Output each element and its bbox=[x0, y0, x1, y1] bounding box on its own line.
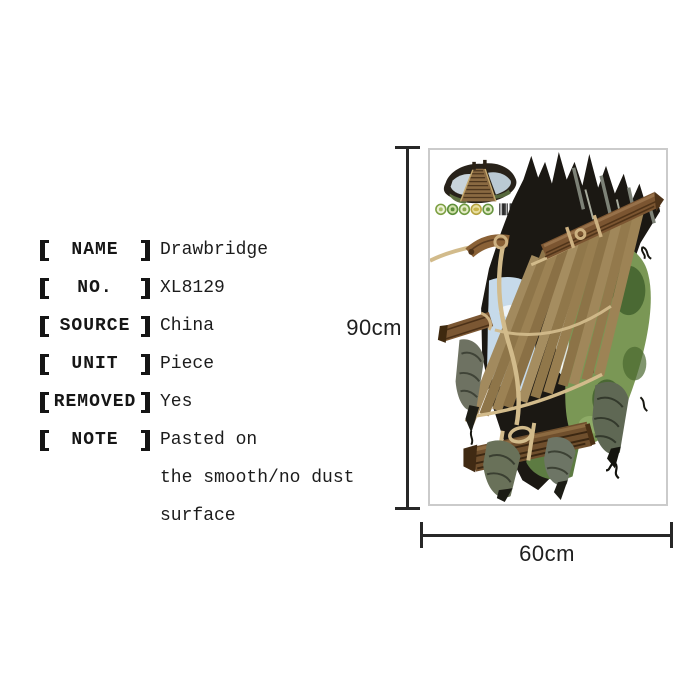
spec-value-note: Pasted on the smooth/no dust surface bbox=[160, 421, 354, 535]
certification-badges bbox=[436, 203, 517, 215]
width-dimension-cap-left bbox=[420, 522, 423, 548]
bracket-close-icon bbox=[141, 392, 150, 413]
branch-twig bbox=[640, 397, 647, 411]
spec-label: NO. bbox=[40, 269, 150, 307]
spec-row-name: NAME Drawbridge bbox=[40, 231, 400, 269]
spec-label: NOTE bbox=[40, 421, 150, 459]
note-line: the smooth/no dust bbox=[160, 459, 354, 497]
note-line: surface bbox=[160, 497, 354, 535]
spec-value: Yes bbox=[160, 383, 192, 421]
bracket-close-icon bbox=[141, 430, 150, 451]
spec-label: REMOVED bbox=[40, 383, 150, 421]
bracket-close-icon bbox=[141, 316, 150, 337]
bracket-open-icon bbox=[40, 430, 49, 451]
bracket-open-icon bbox=[40, 354, 49, 375]
product-info-sheet: NAME Drawbridge NO. XL8129 SOURCE China bbox=[0, 0, 700, 700]
spec-row-removed: REMOVED Yes bbox=[40, 383, 400, 421]
sticker-thumbnail bbox=[444, 160, 517, 204]
spec-row-note: NOTE Pasted on the smooth/no dust surfac… bbox=[40, 421, 400, 535]
bracket-close-icon bbox=[141, 240, 150, 261]
bracket-close-icon bbox=[141, 278, 150, 299]
spec-label-text: NO. bbox=[51, 278, 139, 298]
branch-twig bbox=[642, 247, 651, 259]
height-dimension-line bbox=[406, 147, 409, 510]
bracket-open-icon bbox=[40, 278, 49, 299]
note-line: Pasted on bbox=[160, 421, 354, 459]
spec-row-no: NO. XL8129 bbox=[40, 269, 400, 307]
spec-label-text: SOURCE bbox=[51, 316, 139, 336]
spec-label-text: NAME bbox=[51, 240, 139, 260]
spec-label-text: REMOVED bbox=[51, 392, 139, 412]
height-dimension-cap-top bbox=[395, 146, 420, 149]
sticker-artwork bbox=[430, 150, 666, 504]
bracket-close-icon bbox=[141, 354, 150, 375]
spec-value: Piece bbox=[160, 345, 214, 383]
spec-value: XL8129 bbox=[160, 269, 225, 307]
spec-row-unit: UNIT Piece bbox=[40, 345, 400, 383]
width-dimension-line bbox=[420, 534, 673, 537]
spec-value: Drawbridge bbox=[160, 231, 268, 269]
spec-label-text: NOTE bbox=[51, 430, 139, 450]
spec-list: NAME Drawbridge NO. XL8129 SOURCE China bbox=[40, 231, 400, 535]
height-dimension-cap-bottom bbox=[395, 507, 420, 510]
spec-label: SOURCE bbox=[40, 307, 150, 345]
spec-label: NAME bbox=[40, 231, 150, 269]
spec-value: China bbox=[160, 307, 214, 345]
bracket-open-icon bbox=[40, 240, 49, 261]
product-image-frame bbox=[428, 148, 668, 506]
bracket-open-icon bbox=[40, 392, 49, 413]
width-dimension-cap-right bbox=[670, 522, 673, 548]
spec-label: UNIT bbox=[40, 345, 150, 383]
bracket-open-icon bbox=[40, 316, 49, 337]
width-dimension-label: 60cm bbox=[502, 541, 592, 567]
spec-label-text: UNIT bbox=[51, 354, 139, 374]
height-dimension-label: 90cm bbox=[346, 315, 402, 341]
